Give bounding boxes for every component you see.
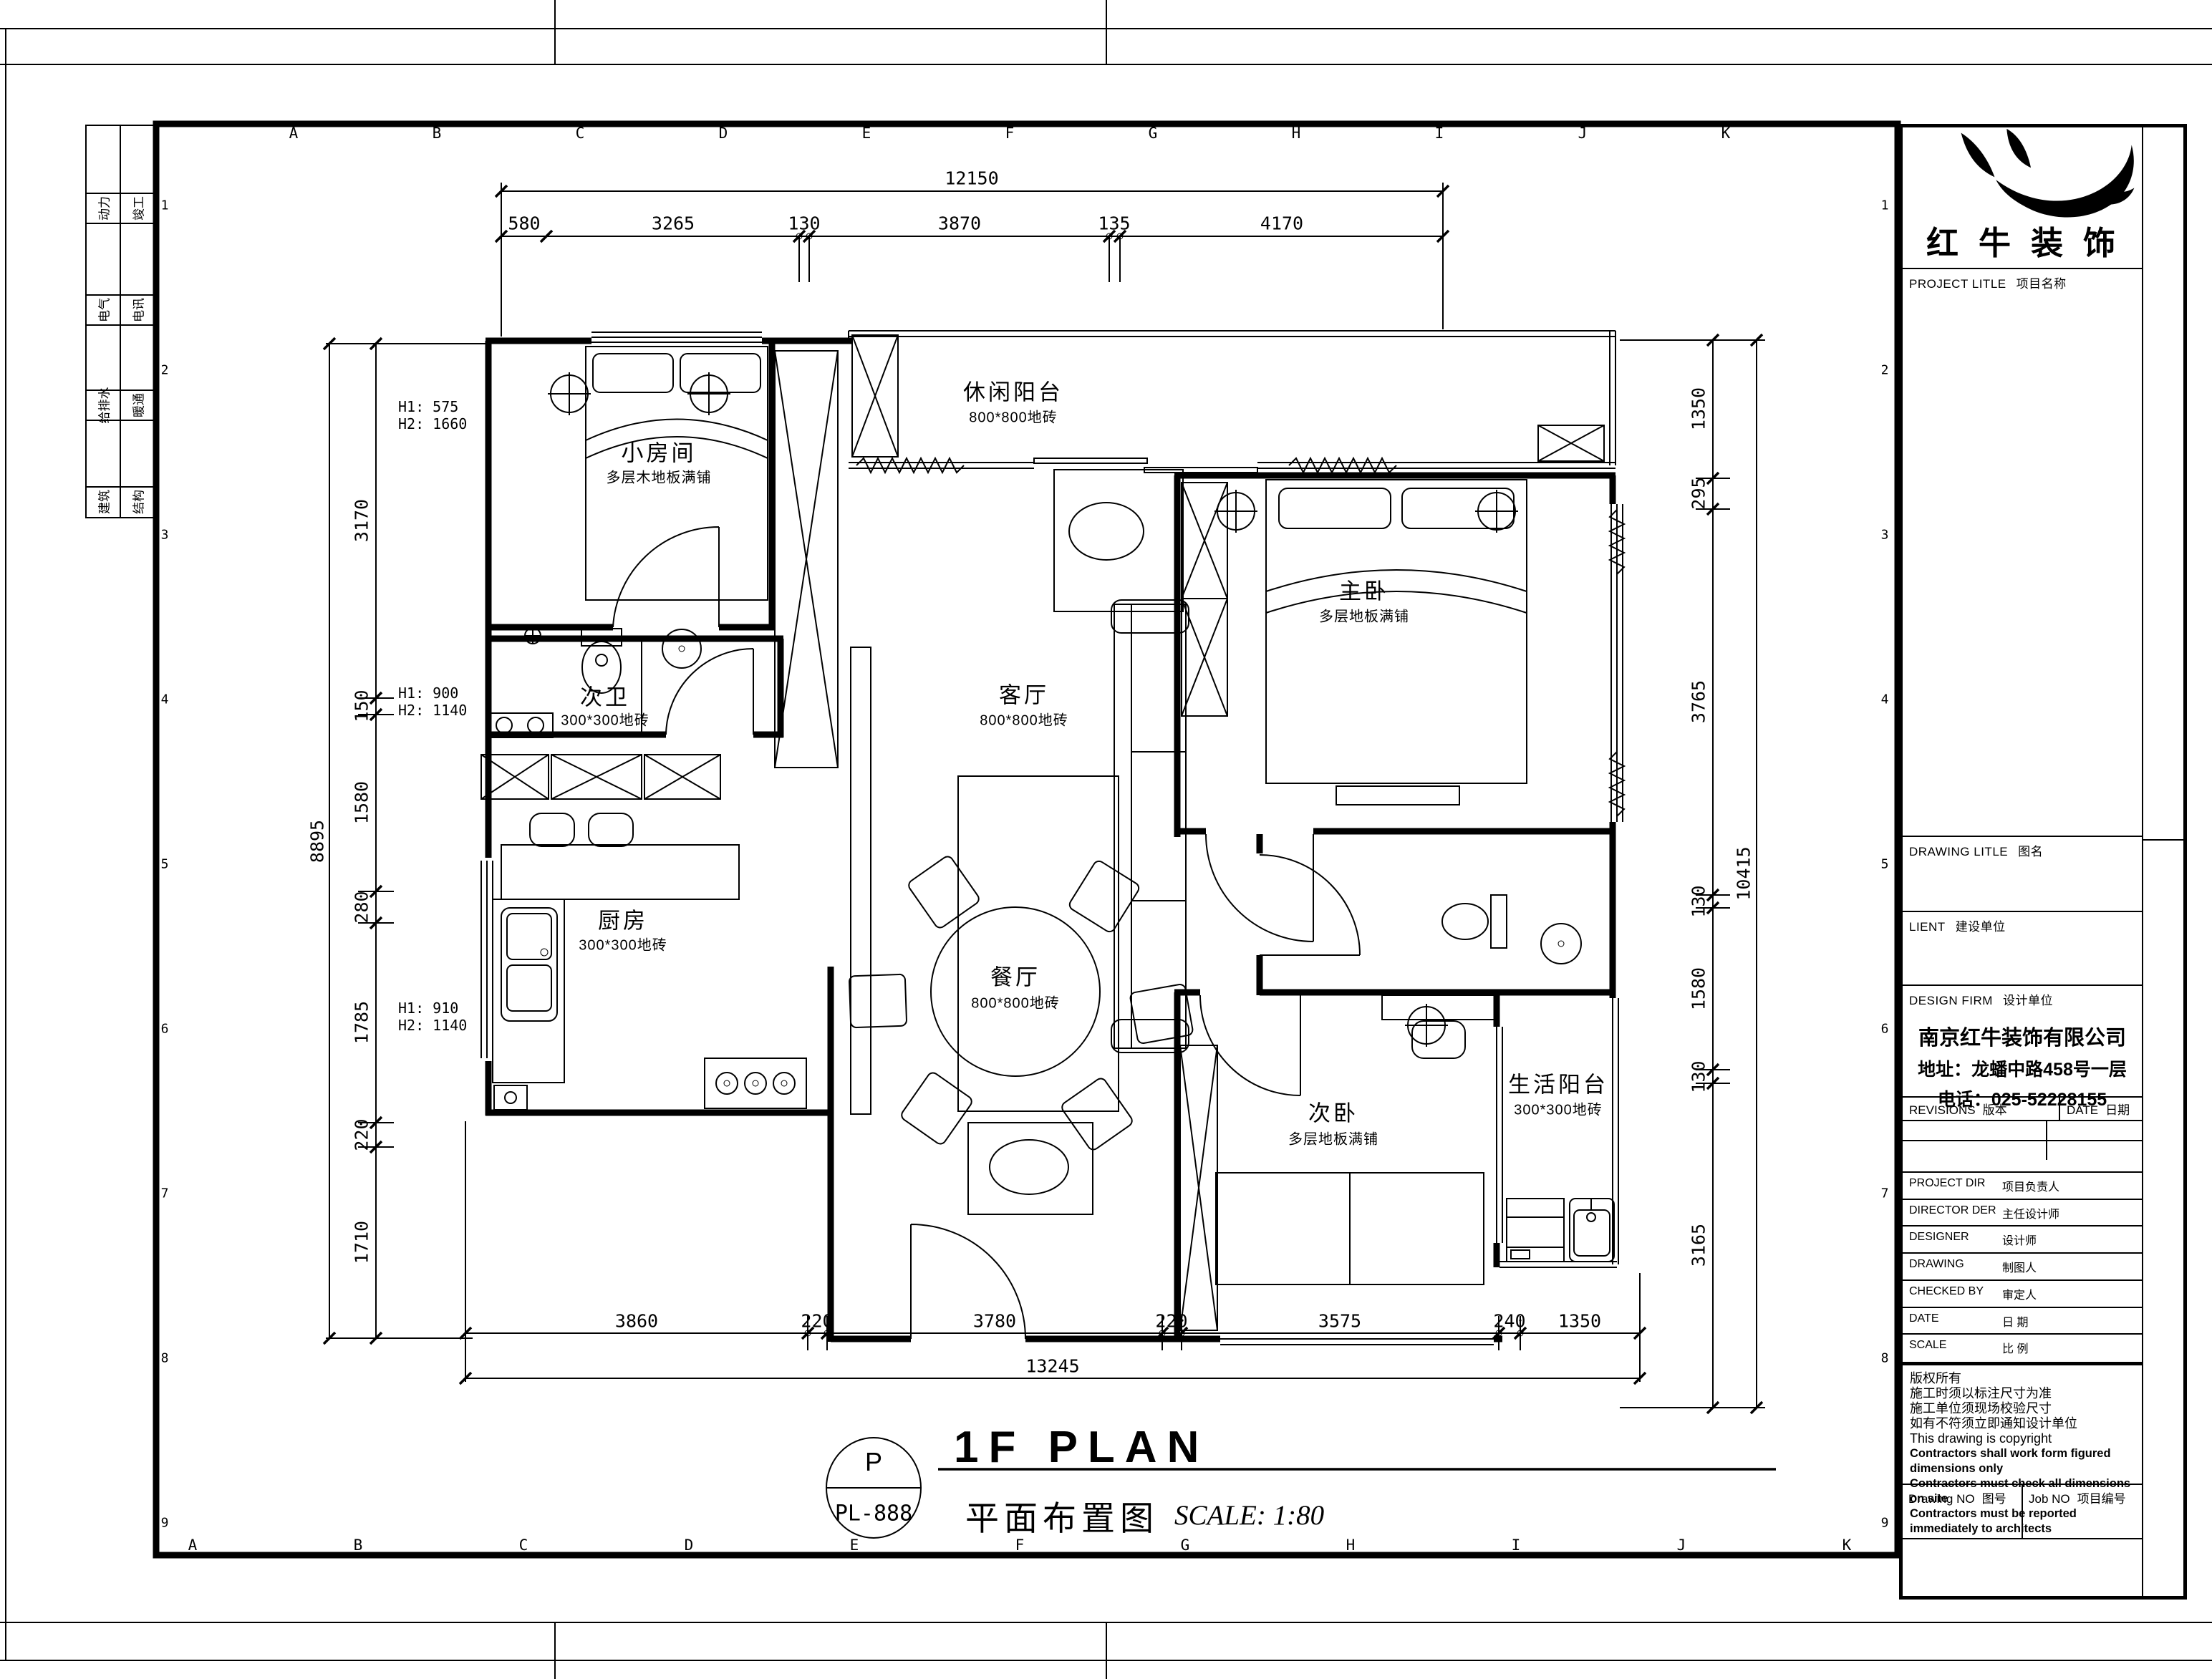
grid-letter-top: E: [862, 125, 871, 142]
row-number-right: 2: [1881, 363, 1889, 378]
dim-right: 130: [1689, 1060, 1709, 1093]
room-finish: 多层木地板满铺: [607, 466, 712, 487]
grid-letter-top: C: [576, 125, 585, 142]
discipline-label: 给排水: [95, 387, 112, 424]
grid-letter-top: B: [433, 125, 442, 142]
people-label-cn: 设计师: [2002, 1231, 2037, 1248]
firm-label-en: DESIGN FIRM: [1909, 994, 1993, 1007]
dim-left: 1710: [352, 1221, 372, 1264]
dim-left: 150: [352, 689, 372, 722]
date-col-label-cn: 日期: [2105, 1103, 2130, 1117]
row-number-left: 7: [161, 1186, 169, 1201]
window-note: H2: 1660: [398, 415, 467, 432]
people-label-en: DIRECTOR DER: [1909, 1204, 2002, 1217]
grid-letter-top: J: [1578, 125, 1588, 142]
dim-right-total: 10415: [1734, 846, 1754, 900]
dim-top: 4170: [1260, 213, 1303, 234]
revisions-section: REVISIONS版本 DATE日期: [1903, 1096, 2142, 1171]
job-no-label-cn: 项目编号: [2077, 1492, 2126, 1506]
discipline-label: 竣工: [129, 196, 147, 221]
room-finish: 800*800地砖: [969, 406, 1058, 427]
room-finish: 300*300地砖: [1514, 1098, 1603, 1119]
dim-left: 1785: [352, 1001, 372, 1044]
grid-letter-bottom: G: [1181, 1537, 1190, 1554]
copyright-line: This drawing is copyright: [1910, 1431, 2135, 1446]
footer-tag-number: PL-888: [835, 1501, 912, 1526]
grid-letter-bottom: H: [1346, 1537, 1356, 1554]
discipline-label: 结构: [129, 490, 147, 514]
people-label-en: DATE: [1909, 1312, 2002, 1325]
title-block-side-column: [2143, 127, 2183, 1596]
people-label-cn: 项目负责人: [2002, 1177, 2059, 1194]
discipline-label: 暖通: [129, 393, 147, 417]
grid-letter-bottom: E: [850, 1537, 859, 1554]
dim-left: 3170: [352, 499, 372, 542]
dim-right: 3765: [1689, 680, 1709, 723]
dim-bottom: 220: [801, 1311, 833, 1332]
project-label-en: PROJECT LITLE: [1909, 277, 2006, 291]
people-label-en: DRAWING: [1909, 1258, 2002, 1271]
people-label-en: SCALE: [1909, 1339, 2002, 1352]
dimension-dots: [796, 233, 1523, 1336]
window-note: H2: 1140: [398, 1017, 467, 1034]
revision-row: [1903, 1121, 2142, 1141]
grid-letter-bottom: C: [519, 1537, 528, 1554]
row-number-left: 6: [161, 1022, 169, 1037]
row-number-left: 9: [161, 1516, 169, 1531]
copyright-line: Contractors shall work form figured dime…: [1910, 1446, 2135, 1476]
room-finish: 300*300地砖: [579, 934, 667, 954]
dim-left: 280: [352, 891, 372, 923]
dim-top: 130: [788, 213, 820, 234]
revisions-label-cn: 版本: [1983, 1103, 2007, 1117]
drawing-title-label-cn: 图名: [2018, 845, 2043, 858]
people-label-cn: 审定人: [2002, 1285, 2037, 1302]
title-block: 红牛装饰 PROJECT LITLE项目名称 DRAWING LITLE图名 L…: [1899, 124, 2187, 1600]
grid-letter-top: D: [719, 125, 728, 142]
grid-letter-bottom: I: [1512, 1537, 1521, 1554]
dim-bottom-total: 13245: [1025, 1356, 1079, 1377]
dim-right: 3165: [1689, 1224, 1709, 1267]
room-label-xiuxian-yangtai: 休闲阳台: [963, 374, 1063, 407]
grid-letter-top: F: [1005, 125, 1015, 142]
people-label-cn: 制图人: [2002, 1258, 2037, 1275]
dim-bottom: 220: [1155, 1311, 1187, 1332]
grid-letter-top: K: [1721, 125, 1731, 142]
room-label-canting: 餐厅: [990, 959, 1040, 992]
row-number-left: 2: [161, 363, 169, 378]
plan-title-en: 1F PLAN: [954, 1422, 1209, 1473]
drawing-no-label-cn: 图号: [1982, 1492, 2006, 1506]
row-number-left: 5: [161, 857, 169, 872]
personnel-section: PROJECT DIR项目负责人 DIRECTOR DER主任设计师 DESIG…: [1903, 1171, 2142, 1362]
firm-label-cn: 设计单位: [2003, 994, 2053, 1007]
date-col-label-en: DATE: [2067, 1103, 2098, 1117]
dim-right: 1350: [1689, 387, 1709, 430]
discipline-label: 建筑: [95, 490, 112, 514]
footer-tag-letter: P: [865, 1447, 882, 1477]
row-number-left: 1: [161, 198, 169, 213]
row-number-left: 8: [161, 1351, 169, 1366]
job-no-label-en: Job NO: [2029, 1492, 2070, 1506]
grid-letter-bottom: K: [1842, 1537, 1852, 1554]
grid-letter-bottom: D: [685, 1537, 694, 1554]
door-swings: [613, 527, 1360, 1339]
logo-text: 红牛装饰: [1903, 217, 2142, 263]
dim-top: 135: [1098, 213, 1130, 234]
furniture: [487, 347, 1614, 1284]
design-firm-section: DESIGN FIRM设计单位 南京红牛装饰有限公司 地址：龙蟠中路458号一层…: [1903, 984, 2142, 1096]
dim-right: 130: [1689, 885, 1709, 917]
row-number-right: 5: [1881, 857, 1889, 872]
row-number-left: 3: [161, 528, 169, 543]
room-label-zhuwo: 主卧: [1339, 574, 1389, 606]
window-note: H2: 1140: [398, 702, 467, 719]
window-note: H1: 910: [398, 1000, 458, 1017]
room-label-ciwo: 次卧: [1308, 1095, 1358, 1128]
room-finish: 多层地板满铺: [1319, 605, 1409, 626]
room-finish: 多层地板满铺: [1288, 1128, 1378, 1148]
room-label-shenghuo-yangtai: 生活阳台: [1508, 1067, 1608, 1099]
dim-top: 3870: [938, 213, 981, 234]
copyright-line: 施工时须以标注尺寸为准: [1910, 1386, 2135, 1401]
room-label-xiaofangjian: 小房间: [622, 435, 697, 468]
dim-right: 1580: [1689, 967, 1709, 1010]
dim-bottom: 240: [1493, 1311, 1525, 1332]
company-address: 地址：龙蟠中路458号一层: [1903, 1055, 2142, 1081]
row-number-right: 8: [1881, 1351, 1889, 1366]
dim-left-total: 8895: [307, 820, 328, 863]
people-label-cn: 比 例: [2002, 1339, 2028, 1356]
grid-letter-top: A: [289, 125, 299, 142]
window-note: H1: 575: [398, 398, 458, 415]
people-label-cn: 日 期: [2002, 1312, 2028, 1330]
logo-section: 红牛装饰: [1903, 127, 2142, 268]
copyright-section: 版权所有 施工时须以标注尺寸为准 施工单位须现场校验尺寸 如有不符须立即通知设计…: [1903, 1362, 2142, 1484]
row-number-right: 9: [1881, 1516, 1889, 1531]
drawing-no-label-en: Drawing NO: [1908, 1492, 1975, 1506]
client-section: LIENT建设单位: [1903, 911, 2142, 984]
revision-row: [1903, 1141, 2142, 1160]
grid-letter-bottom: J: [1677, 1537, 1686, 1554]
people-label-en: PROJECT DIR: [1909, 1177, 2002, 1190]
row-number-right: 7: [1881, 1186, 1889, 1201]
dim-bottom: 3780: [973, 1311, 1016, 1332]
people-label-en: CHECKED BY: [1909, 1285, 2002, 1298]
room-label-ciwei: 次卫: [580, 679, 630, 712]
dim-left: 1580: [352, 781, 372, 824]
client-label-cn: 建设单位: [1956, 920, 2006, 934]
copyright-line: 版权所有: [1910, 1371, 2135, 1386]
row-number-right: 1: [1881, 198, 1889, 213]
client-label-en: LIENT: [1909, 920, 1946, 934]
dim-bottom: 1350: [1558, 1311, 1601, 1332]
discipline-label: 电气: [95, 298, 112, 322]
grid-letter-bottom: A: [188, 1537, 198, 1554]
row-number-right: 4: [1881, 692, 1889, 707]
project-title-section: PROJECT LITLE项目名称: [1903, 268, 2142, 836]
drawing-sheet: A B C D E F G H I J K A B C D E F G H I …: [0, 0, 2212, 1679]
title-block-tail: [1903, 1538, 2142, 1596]
grid-letter-top: G: [1149, 125, 1158, 142]
drawing-title-label-en: DRAWING LITLE: [1909, 845, 2008, 858]
grid-letter-top: I: [1435, 125, 1444, 142]
room-label-chufang: 厨房: [598, 903, 648, 935]
discipline-label: 动力: [95, 196, 112, 221]
row-number-right: 6: [1881, 1022, 1889, 1037]
row-number-left: 4: [161, 692, 169, 707]
dim-top: 580: [508, 213, 540, 234]
numbers-section: Drawing NO图号 Job NO项目编号: [1903, 1484, 2142, 1538]
grid-letter-bottom: B: [354, 1537, 363, 1554]
room-finish: 300*300地砖: [561, 709, 649, 730]
room-label-keting: 客厅: [999, 677, 1049, 710]
people-label-en: DESIGNER: [1909, 1231, 2002, 1244]
revisions-label-en: REVISIONS: [1909, 1103, 1976, 1117]
dim-top: 3265: [652, 213, 695, 234]
copyright-line: 如有不符须立即通知设计单位: [1910, 1416, 2135, 1431]
plan-title-cn: 平面布置图: [965, 1491, 1159, 1540]
walls: [486, 341, 1615, 1342]
copyright-line: 施工单位须现场校验尺寸: [1910, 1401, 2135, 1416]
window-note: H1: 900: [398, 684, 458, 702]
dim-right: 295: [1689, 477, 1709, 509]
dim-bottom: 3575: [1318, 1311, 1361, 1332]
room-finish: 800*800地砖: [980, 709, 1068, 730]
row-number-right: 3: [1881, 528, 1889, 543]
company-name: 南京红牛装饰有限公司: [1903, 1021, 2142, 1051]
room-finish: 800*800地砖: [971, 992, 1060, 1012]
dim-bottom: 3860: [615, 1311, 658, 1332]
drawing-title-section: DRAWING LITLE图名: [1903, 836, 2142, 911]
dim-left: 220: [352, 1118, 372, 1151]
discipline-label: 电讯: [129, 298, 147, 322]
people-label-cn: 主任设计师: [2002, 1204, 2059, 1221]
plan-scale: SCALE: 1:80: [1174, 1499, 1324, 1532]
dim-top-total: 12150: [945, 168, 998, 189]
grid-letter-top: H: [1292, 125, 1301, 142]
project-label-cn: 项目名称: [2017, 277, 2067, 291]
